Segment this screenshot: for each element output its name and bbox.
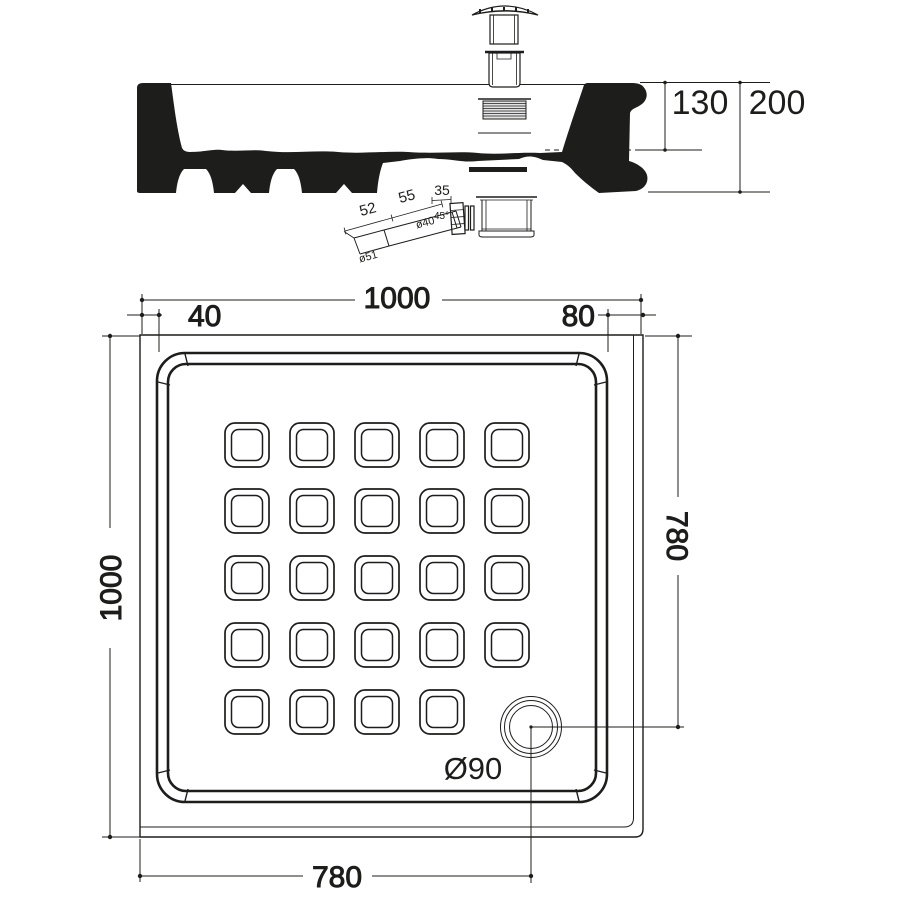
anti-slip-square-inner [297,496,328,527]
anti-slip-square-inner [362,563,393,594]
anti-slip-square-inner [427,496,458,527]
waste-trap-detail: 35 52 55 ø40 45° ø51 [344,182,537,265]
anti-slip-square-inner [232,697,263,728]
anti-slip-squares [225,423,529,734]
anti-slip-square-inner [427,563,458,594]
dim-40: 40 [127,300,221,352]
anti-slip-square-inner [362,630,393,661]
technical-drawing-canvas: 130 200 [0,0,900,900]
dim-1000-left: 1000 [95,334,140,839]
dim-52-label: 52 [358,199,379,220]
anti-slip-square-inner [232,430,263,461]
dim-o51-label: ø51 [358,249,379,266]
anti-slip-square-inner [492,430,523,461]
dim-200: 200 [738,81,805,194]
plan-view: Ø90 1000 40 80 [95,282,693,894]
waste-cap-stem [490,15,518,44]
dim-80-label: 80 [562,300,595,333]
anti-slip-square-inner [427,430,458,461]
dim-780-bottom: 780 [138,839,533,894]
dim-40-label: 40 [188,300,221,333]
dim-780-bottom-label: 780 [312,861,362,894]
trap-nut-ring-2 [471,206,475,230]
dim-o40-label: ø40 [415,215,436,232]
anti-slip-square-inner [232,496,263,527]
anti-slip-square-inner [297,563,328,594]
anti-slip-square-inner [297,430,328,461]
waste-body [489,53,520,87]
section-view: 130 200 [137,81,805,194]
waste-opening-bar [469,167,527,172]
dim-200-label: 200 [749,84,806,122]
anti-slip-square-inner [297,697,328,728]
anti-slip-square-inner [362,430,393,461]
dim-1000-left-label: 1000 [95,555,128,622]
anti-slip-square-inner [492,563,523,594]
waste-fitting-top [472,6,538,133]
anti-slip-square-inner [427,630,458,661]
anti-slip-square-inner [232,563,263,594]
tray-cross-section-silhouette [137,83,647,193]
dim-55-label: 55 [397,186,418,207]
dim-780-right: 780 [645,334,693,729]
anti-slip-square-inner [297,630,328,661]
dim-130-label: 130 [672,84,729,122]
tray-outline [140,335,643,837]
dim-130: 130 [663,81,728,152]
dim-45deg-label: 45° [434,211,449,222]
anti-slip-square-inner [427,697,458,728]
trap-nut-ring-1 [465,206,469,230]
drawing-svg: 130 200 [0,0,900,900]
anti-slip-square-inner [492,496,523,527]
anti-slip-square-inner [492,630,523,661]
dim-780-right-label: 780 [660,511,693,561]
anti-slip-square-inner [362,697,393,728]
dim-1000-top-label: 1000 [364,282,431,315]
tray-outline-inner-edge [140,335,634,827]
anti-slip-square-inner [232,630,263,661]
trap-body-bottom [479,231,534,237]
anti-slip-square-inner [362,496,393,527]
dim-35-label: 35 [434,182,450,198]
drain-diameter-label: Ø90 [444,751,503,786]
dim-80: 80 [562,300,656,352]
